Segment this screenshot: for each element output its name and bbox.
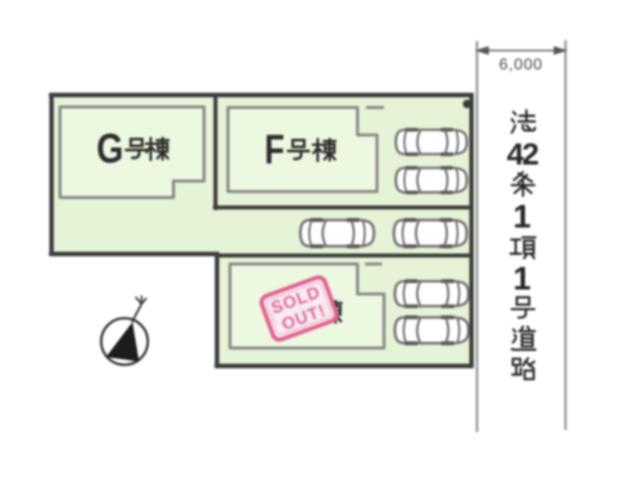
svg-text:1: 1 <box>513 261 531 297</box>
svg-text:F: F <box>265 126 285 173</box>
svg-text:42: 42 <box>507 137 538 172</box>
svg-text:6,000: 6,000 <box>499 57 543 74</box>
svg-text:1: 1 <box>513 199 531 235</box>
svg-text:G: G <box>97 125 124 172</box>
